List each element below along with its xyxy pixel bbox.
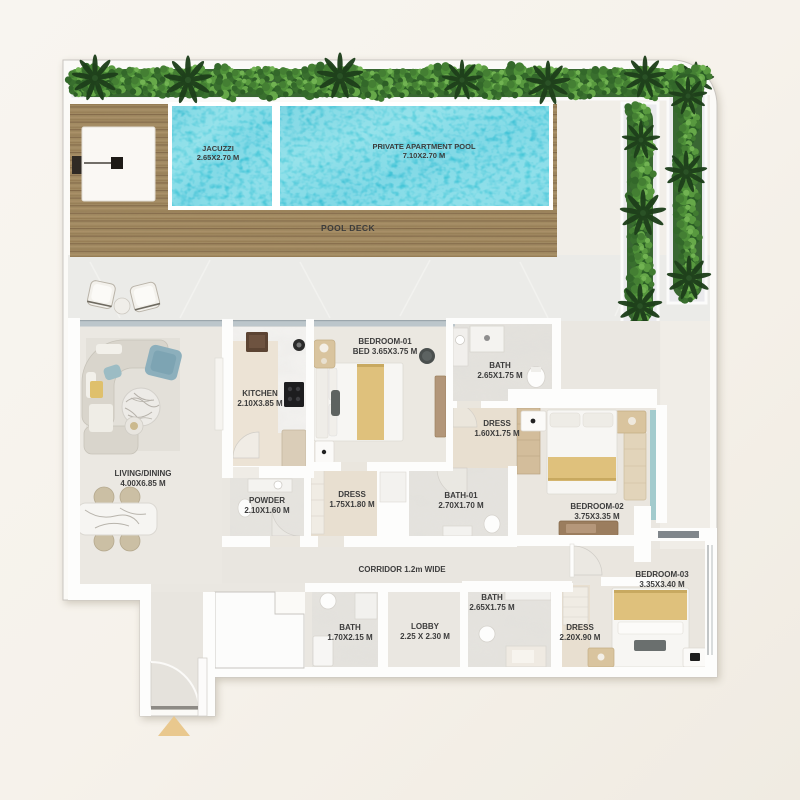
svg-text:1.70X2.15 M: 1.70X2.15 M — [327, 633, 373, 642]
svg-text:DRESS: DRESS — [483, 419, 511, 428]
svg-text:JACUZZI: JACUZZI — [202, 144, 234, 153]
svg-text:POWDER: POWDER — [249, 496, 285, 505]
svg-text:LOBBY: LOBBY — [411, 622, 440, 631]
svg-text:1.60X1.75 M: 1.60X1.75 M — [474, 429, 520, 438]
svg-text:BEDROOM-02: BEDROOM-02 — [570, 502, 624, 511]
svg-text:BATH: BATH — [481, 593, 503, 602]
svg-text:2.20X.90 M: 2.20X.90 M — [560, 633, 601, 642]
svg-text:2.10X3.85 M: 2.10X3.85 M — [237, 399, 283, 408]
svg-text:3.35X3.40 M: 3.35X3.40 M — [639, 580, 685, 589]
svg-text:2.10X1.60 M: 2.10X1.60 M — [244, 506, 290, 515]
svg-text:2.65X2.70 M: 2.65X2.70 M — [197, 153, 240, 162]
svg-text:2.25 X 2.30 M: 2.25 X 2.30 M — [400, 632, 450, 641]
svg-text:2.65X1.75 M: 2.65X1.75 M — [477, 371, 523, 380]
svg-text:LIVING/DINING: LIVING/DINING — [115, 469, 172, 478]
svg-text:BATH: BATH — [489, 361, 511, 370]
svg-text:7.10X2.70 M: 7.10X2.70 M — [403, 151, 446, 160]
svg-text:2.70X1.70 M: 2.70X1.70 M — [438, 501, 484, 510]
svg-text:3.75X3.35 M: 3.75X3.35 M — [574, 512, 620, 521]
svg-text:4.00X6.85 M: 4.00X6.85 M — [120, 479, 166, 488]
svg-text:KITCHEN: KITCHEN — [242, 389, 278, 398]
svg-text:POOL DECK: POOL DECK — [321, 223, 375, 233]
svg-text:BEDROOM-01: BEDROOM-01 — [358, 337, 412, 346]
svg-text:BEDROOM-03: BEDROOM-03 — [635, 570, 689, 579]
svg-text:BATH-01: BATH-01 — [444, 491, 478, 500]
svg-text:2.65X1.75 M: 2.65X1.75 M — [469, 603, 515, 612]
svg-text:PRIVATE APARTMENT POOL: PRIVATE APARTMENT POOL — [372, 142, 475, 151]
svg-text:CORRIDOR 1.2m WIDE: CORRIDOR 1.2m WIDE — [358, 565, 446, 574]
svg-text:DRESS: DRESS — [338, 490, 366, 499]
svg-text:DRESS: DRESS — [566, 623, 594, 632]
svg-text:BED 3.65X3.75 M: BED 3.65X3.75 M — [353, 347, 418, 356]
svg-text:BATH: BATH — [339, 623, 361, 632]
svg-text:1.75X1.80 M: 1.75X1.80 M — [329, 500, 375, 509]
